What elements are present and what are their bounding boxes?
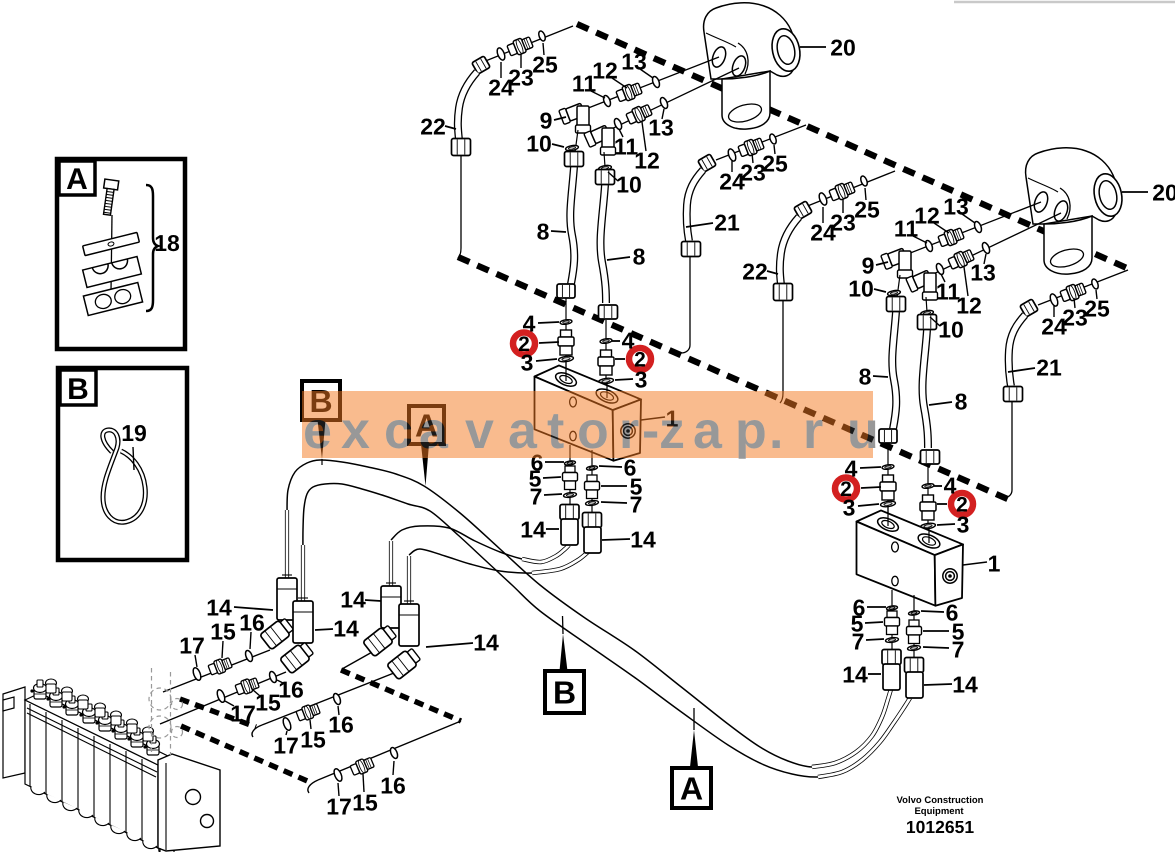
svg-text:16: 16	[328, 711, 354, 737]
svg-text:15: 15	[255, 689, 281, 715]
svg-text:14: 14	[520, 516, 546, 542]
svg-text:15: 15	[352, 789, 378, 815]
svg-text:14: 14	[340, 586, 366, 612]
svg-text:7: 7	[630, 491, 643, 517]
svg-text:16: 16	[380, 772, 406, 798]
svg-text:B: B	[553, 675, 576, 711]
svg-text:4: 4	[622, 327, 635, 353]
svg-text:3: 3	[635, 366, 648, 392]
svg-text:25: 25	[532, 51, 558, 77]
svg-text:A: A	[680, 771, 703, 807]
svg-text:15: 15	[210, 618, 236, 644]
svg-text:17: 17	[273, 732, 299, 758]
svg-text:17: 17	[326, 793, 352, 819]
svg-text:18: 18	[154, 230, 180, 256]
svg-text:20: 20	[830, 34, 856, 60]
svg-text:23: 23	[508, 64, 534, 90]
svg-text:16: 16	[239, 609, 265, 635]
svg-text:3: 3	[521, 349, 534, 375]
svg-text:17: 17	[179, 632, 205, 658]
svg-text:25: 25	[762, 150, 788, 176]
svg-text:8: 8	[537, 218, 550, 244]
svg-text:8: 8	[633, 243, 646, 269]
svg-text:Equipment: Equipment	[914, 806, 964, 817]
svg-text:14: 14	[630, 526, 656, 552]
svg-text:19: 19	[121, 420, 147, 446]
svg-text:13: 13	[648, 114, 674, 140]
svg-text:Volvo Construction: Volvo Construction	[897, 795, 984, 806]
svg-text:7: 7	[530, 483, 543, 509]
svg-text:14: 14	[473, 629, 499, 655]
svg-text:10: 10	[526, 130, 552, 156]
svg-text:14: 14	[206, 594, 232, 620]
svg-text:16: 16	[278, 676, 304, 702]
svg-text:B: B	[67, 373, 89, 406]
svg-text:1012651: 1012651	[906, 817, 974, 837]
svg-text:22: 22	[420, 113, 446, 139]
svg-text:14: 14	[333, 615, 359, 641]
svg-text:21: 21	[714, 209, 740, 235]
svg-text:4: 4	[523, 310, 536, 336]
svg-text:17: 17	[230, 700, 256, 726]
svg-text:10: 10	[616, 171, 642, 197]
svg-text:15: 15	[300, 726, 326, 752]
svg-text:11: 11	[614, 133, 639, 159]
svg-text:A: A	[66, 163, 88, 196]
